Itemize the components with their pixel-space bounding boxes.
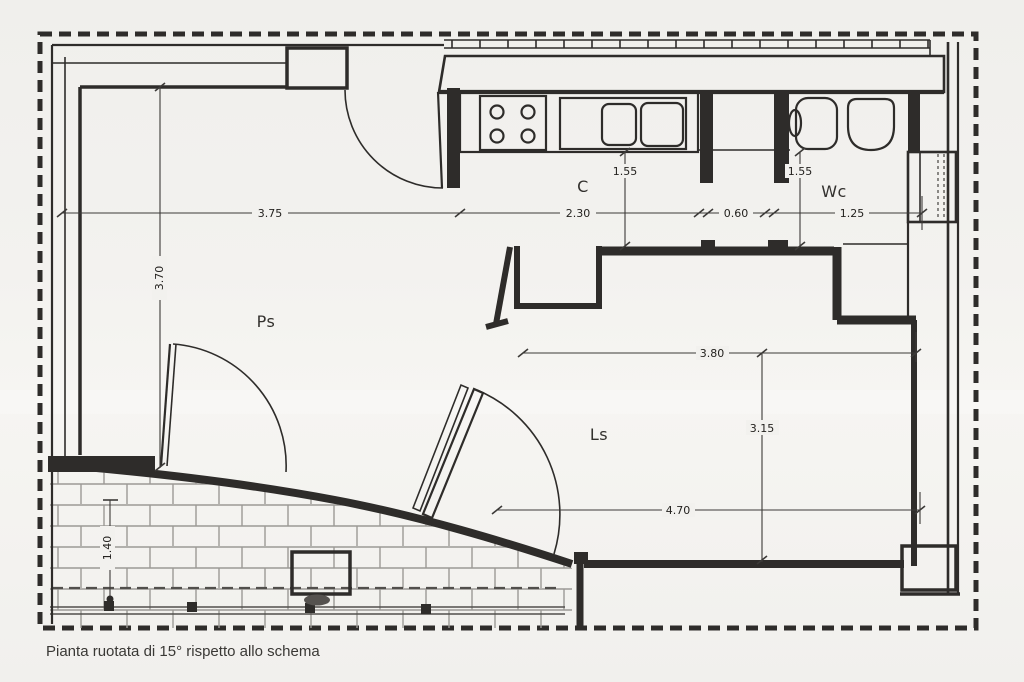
- door-swing-arc: [477, 390, 560, 554]
- wall-stub: [908, 90, 920, 152]
- dimension-label: 4.70: [666, 504, 691, 517]
- dimension-label: 3.75: [258, 207, 283, 220]
- room-label-wc: Wc: [821, 182, 847, 201]
- entrance-pier-hatched: [287, 48, 347, 88]
- toilet: [789, 98, 837, 149]
- dimension-label: 1.55: [613, 165, 638, 178]
- top-railing-strip: [444, 40, 930, 48]
- room-label-ps: Ps: [257, 312, 276, 331]
- dimension-ls-depth: [757, 349, 767, 564]
- room-label-c: C: [577, 177, 589, 196]
- entrance-door-leaf: [438, 92, 442, 188]
- pillar-base-mark: [304, 595, 330, 606]
- caption-text: Pianta ruotata di 15° rispetto allo sche…: [46, 643, 320, 660]
- wall-stub: [447, 88, 460, 188]
- dimension-label: 3.70: [153, 266, 166, 291]
- door-leaf: [423, 389, 483, 518]
- dimension-kitchen-depth: [620, 148, 630, 250]
- ps-south-wall: [48, 456, 155, 472]
- room-label-ls: Ls: [590, 425, 608, 444]
- dimension-label: 1.25: [840, 207, 865, 220]
- room-labels: Ps C Wc Ls: [257, 177, 847, 444]
- entrance-door-swing-arc: [345, 90, 443, 188]
- wc-fixtures: [789, 90, 956, 222]
- dimension-label: 2.30: [566, 207, 591, 220]
- ps-terrace-door: [161, 344, 286, 472]
- dimension-label: 0.60: [724, 207, 749, 220]
- dimension-label: 3.80: [700, 347, 725, 360]
- terrace: [46, 460, 576, 630]
- dimension-ls-bottom: [492, 492, 925, 524]
- floor-plan-scan: 3.75 2.30 0.60 1.25 1.55 1.55 3.70 3.80 …: [0, 0, 1024, 682]
- dimension-label: 1.55: [788, 165, 813, 178]
- dimension-wc-depth: [795, 148, 805, 250]
- plan-drawing: 3.75 2.30 0.60 1.25 1.55 1.55 3.70 3.80 …: [0, 0, 1024, 682]
- sink: [560, 98, 686, 149]
- north-wall-hatched: [439, 56, 944, 92]
- dimension-row-top: [57, 196, 927, 230]
- wall-stub: [700, 90, 713, 183]
- stove: [480, 96, 546, 150]
- dimension-label: 1.40: [101, 536, 114, 561]
- bidet: [848, 99, 894, 150]
- door-swing-arc: [173, 344, 286, 472]
- entrance-door: [345, 90, 443, 188]
- dimension-label: 3.15: [750, 422, 775, 435]
